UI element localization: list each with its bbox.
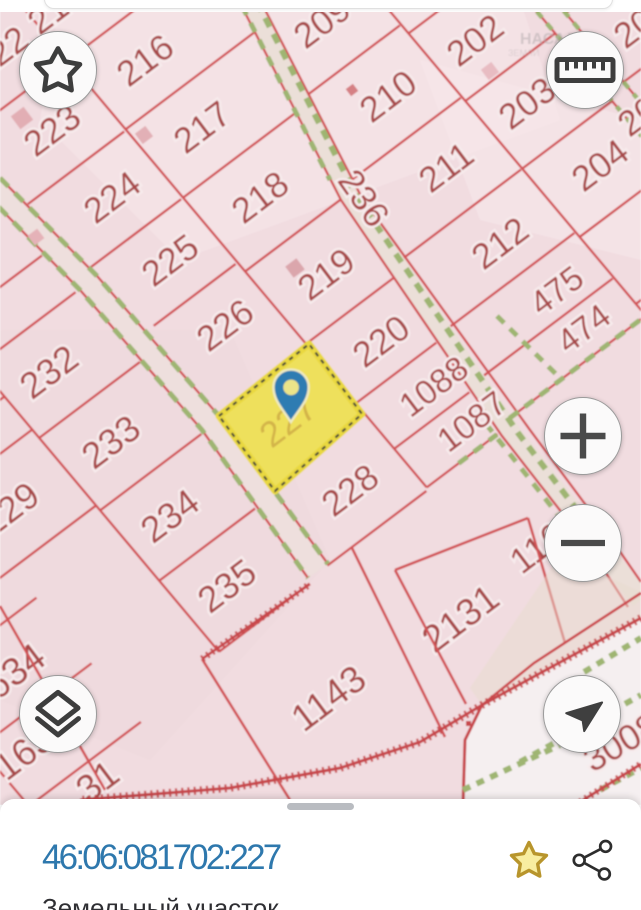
svg-text:ЗЕМЛИ: ЗЕМЛИ	[508, 48, 539, 58]
